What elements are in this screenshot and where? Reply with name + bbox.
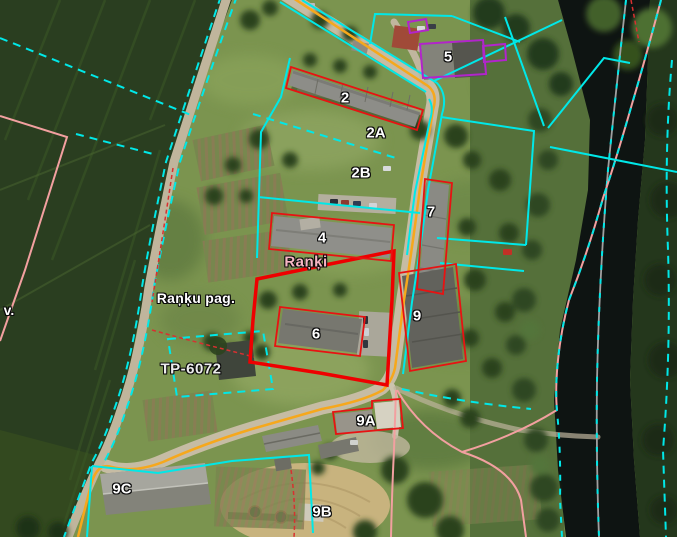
map-viewport[interactable]: 2 2A 2B 4 5 6 7 9 9A 9B 9C Raņķi Raņķu p… <box>0 0 677 537</box>
aerial-imagery <box>0 0 677 537</box>
